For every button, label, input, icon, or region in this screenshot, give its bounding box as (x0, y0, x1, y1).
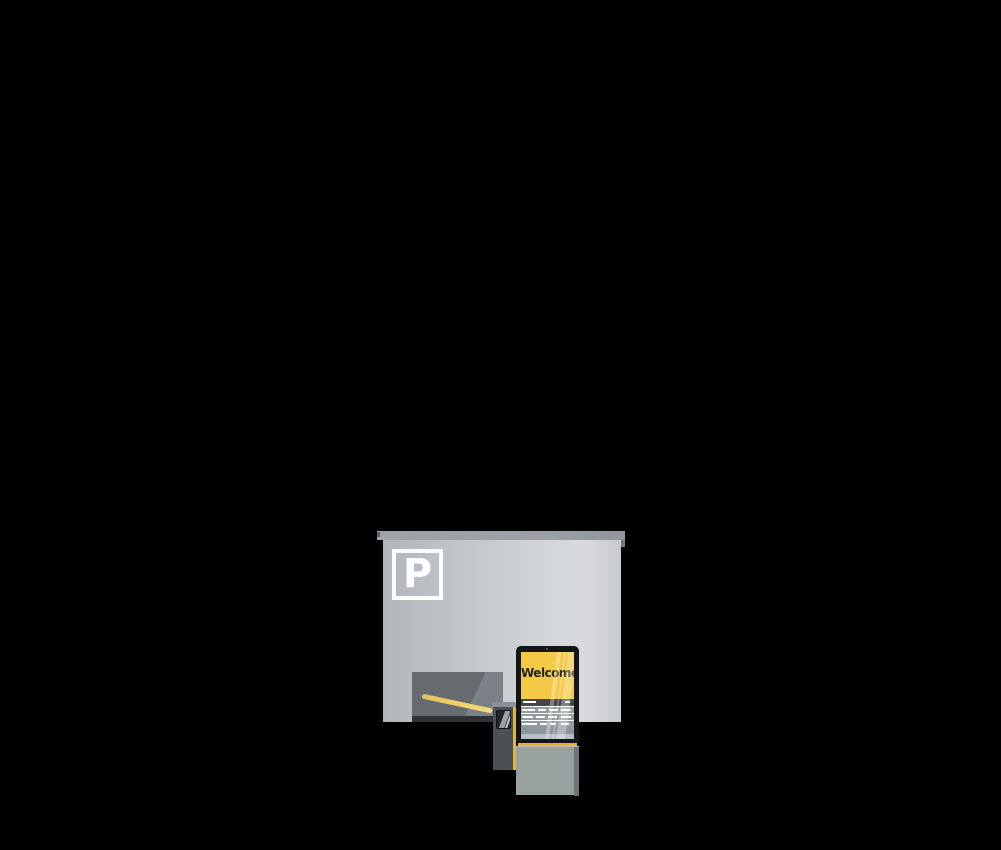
text-line (548, 716, 557, 718)
kiosk-pedestal-edge (574, 747, 579, 796)
text-line (561, 723, 569, 725)
text-line (522, 723, 537, 725)
text-line (523, 701, 536, 703)
text-line (549, 709, 558, 711)
barrier-display-glass (497, 711, 510, 728)
kiosk-screen-bottom-band (521, 734, 574, 739)
kiosk-camera-icon (546, 648, 548, 650)
kiosk-list-header (521, 699, 574, 706)
kiosk-pedestal (516, 746, 579, 795)
kiosk-screen: Welcome (521, 652, 574, 739)
text-line (522, 716, 533, 718)
building-roof (377, 531, 625, 540)
text-line (536, 716, 545, 718)
text-line (565, 701, 570, 703)
parking-entrance-illustration: P Welcome (0, 0, 1001, 850)
text-line (550, 723, 556, 725)
parking-sign: P (392, 549, 443, 600)
text-line (540, 723, 547, 725)
kiosk-trim-stripe (518, 743, 577, 746)
text-line (561, 716, 571, 718)
parking-sign-letter: P (403, 554, 432, 594)
text-line (522, 709, 535, 711)
text-line (538, 709, 546, 711)
barrier-post-display (496, 710, 511, 729)
opening-floor-shadow (412, 716, 503, 722)
text-line (561, 709, 571, 711)
roof-left-tab (377, 532, 380, 537)
kiosk-screen-lower-band (521, 727, 574, 734)
welcome-text: Welcome (521, 666, 574, 680)
welcome-kiosk: Welcome (516, 646, 579, 744)
